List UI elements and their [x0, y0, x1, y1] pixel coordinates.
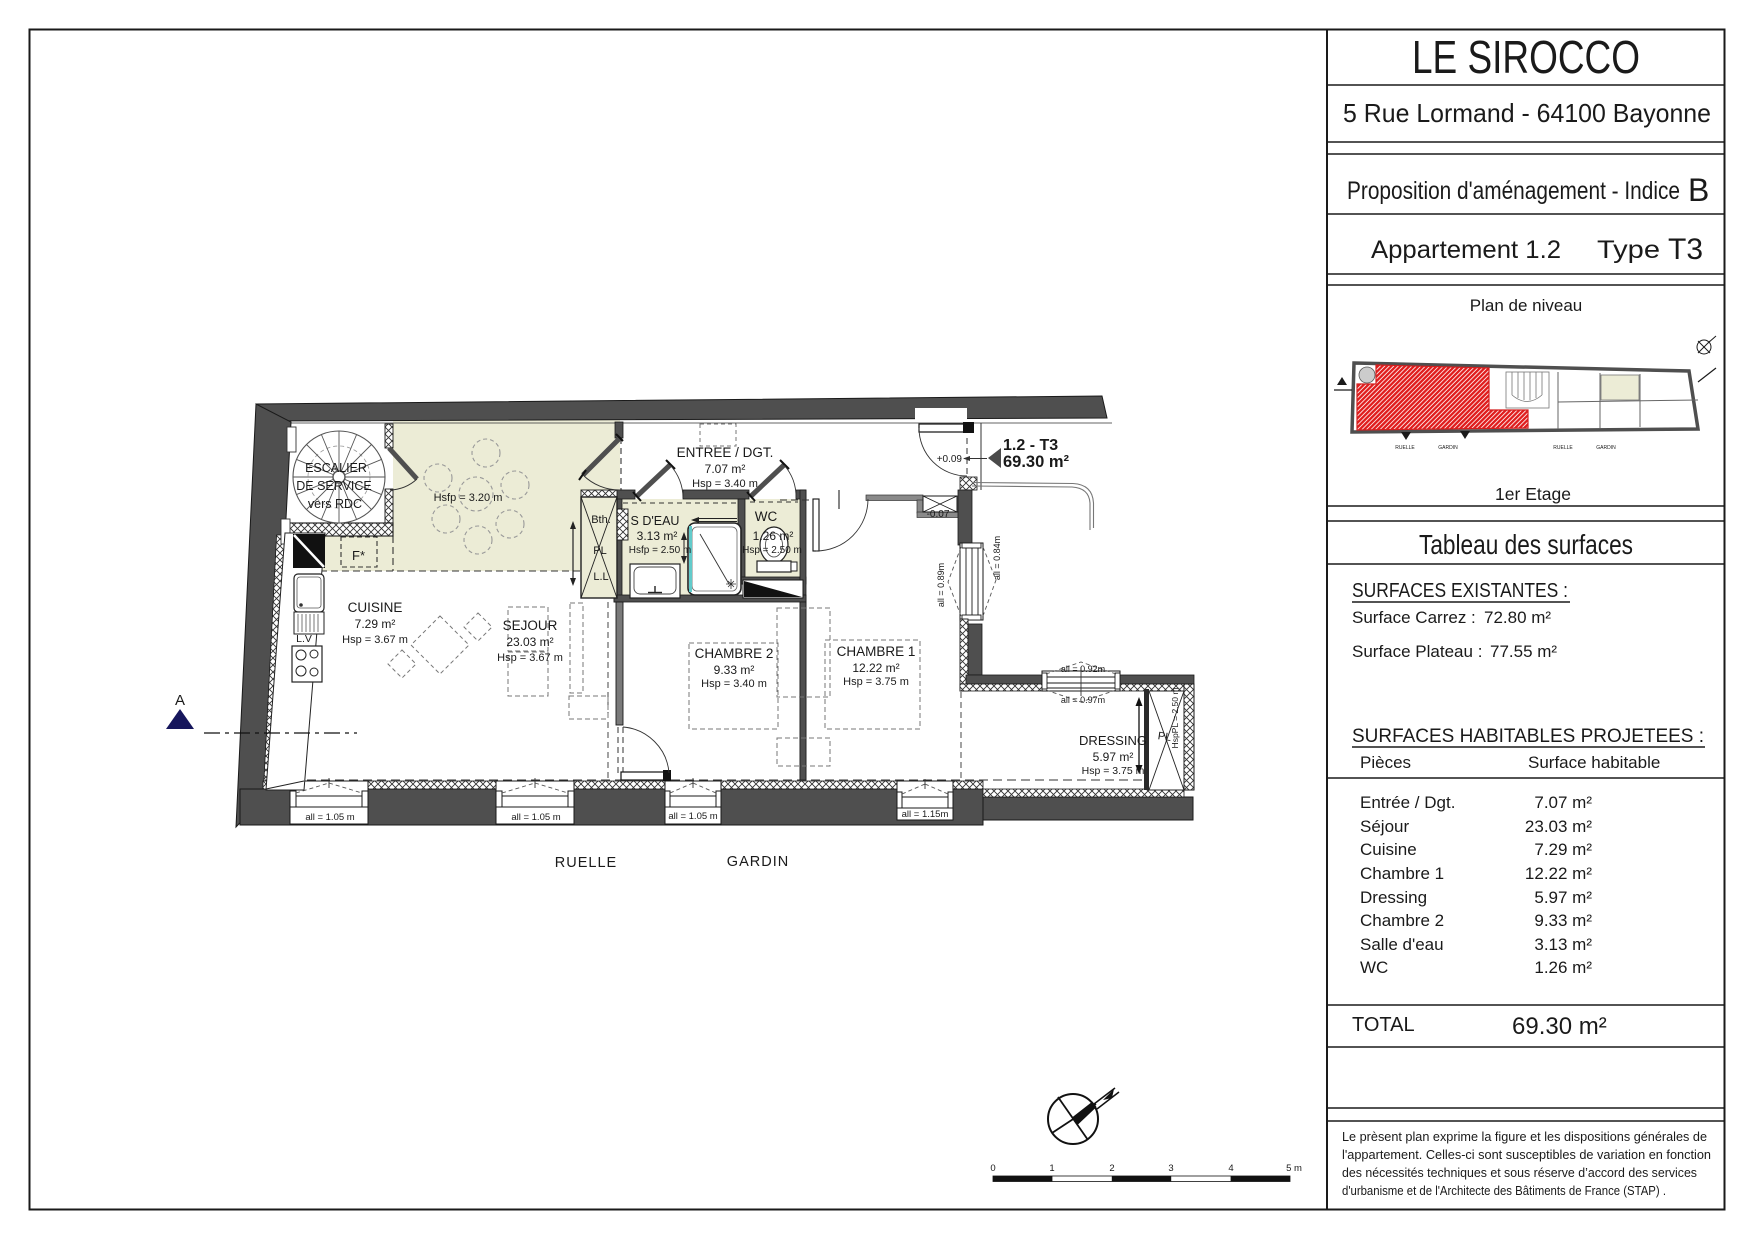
svg-text:69.30 m²: 69.30 m²	[1003, 453, 1070, 471]
svg-text:5.97 m²: 5.97 m²	[1093, 750, 1134, 764]
svg-text:SURFACES HABITABLES PROJETEES: SURFACES HABITABLES PROJETEES :	[1352, 725, 1704, 747]
svg-text:Hsp = 3.67 m: Hsp = 3.67 m	[342, 634, 408, 646]
svg-text:vers RDC: vers RDC	[308, 497, 362, 511]
svg-text:all = 1.05 m: all = 1.05 m	[668, 811, 717, 822]
svg-text:Cuisine: Cuisine	[1360, 840, 1417, 859]
svg-text:Hsp = 3.75 m: Hsp = 3.75 m	[843, 676, 909, 688]
svg-text:F*: F*	[352, 548, 365, 563]
svg-text:all = 0.84m: all = 0.84m	[992, 536, 1002, 580]
svg-text:1er Etage: 1er Etage	[1495, 484, 1571, 504]
svg-text:Surface habitable: Surface habitable	[1528, 753, 1660, 772]
svg-text:all = 0.92m: all = 0.92m	[1061, 664, 1105, 674]
svg-text:SEJOUR: SEJOUR	[503, 618, 558, 633]
svg-text:Chambre 1: Chambre 1	[1360, 864, 1444, 883]
svg-text:RUELLE: RUELLE	[555, 855, 617, 871]
svg-text:L.V: L.V	[296, 633, 312, 645]
svg-text:Tableau des surfaces: Tableau des surfaces	[1419, 529, 1633, 560]
svg-text:1.26 m²: 1.26 m²	[753, 529, 794, 543]
svg-text:CHAMBRE 1: CHAMBRE 1	[837, 644, 916, 659]
svg-text:all = 1.05 m: all = 1.05 m	[511, 812, 560, 823]
svg-text:Salle d'eau: Salle d'eau	[1360, 935, 1444, 954]
svg-text:7.29 m²: 7.29 m²	[355, 617, 396, 631]
svg-text:3.13 m²: 3.13 m²	[637, 529, 678, 543]
svg-text:all = 1.05 m: all = 1.05 m	[305, 812, 354, 823]
svg-text:5 Rue Lormand - 64100 Bayonne: 5 Rue Lormand - 64100 Bayonne	[1343, 98, 1711, 128]
svg-text:TOTAL: TOTAL	[1352, 1014, 1415, 1036]
svg-text:Séjour: Séjour	[1360, 817, 1409, 836]
svg-text:RUELLE: RUELLE	[1395, 445, 1415, 451]
svg-text:12.22 m²: 12.22 m²	[852, 661, 899, 675]
svg-text:9.33 m²: 9.33 m²	[1534, 911, 1592, 930]
svg-text:all = 0.89m: all = 0.89m	[936, 563, 946, 607]
svg-text:12.22 m²: 12.22 m²	[1525, 864, 1592, 883]
svg-text:S D'EAU: S D'EAU	[631, 514, 680, 528]
svg-text:3.13 m²: 3.13 m²	[1534, 935, 1592, 954]
svg-text:HspPL = 2.50 m: HspPL = 2.50 m	[1170, 688, 1180, 749]
svg-text:CHAMBRE 2: CHAMBRE 2	[695, 646, 774, 661]
svg-text:4: 4	[1228, 1163, 1233, 1174]
svg-text:+0.09: +0.09	[937, 454, 963, 465]
svg-text:1.2 - T3: 1.2 - T3	[1003, 437, 1058, 454]
svg-text:SURFACES EXISTANTES :: SURFACES EXISTANTES :	[1352, 580, 1568, 602]
svg-text:77.55 m²: 77.55 m²	[1490, 642, 1557, 661]
svg-text:Pièces: Pièces	[1360, 753, 1411, 772]
svg-text:72.80 m²: 72.80 m²	[1484, 608, 1551, 627]
svg-text:Surface Plateau :: Surface Plateau :	[1352, 642, 1482, 661]
svg-text:5.97 m²: 5.97 m²	[1534, 888, 1592, 907]
svg-text:69.30 m²: 69.30 m²	[1512, 1013, 1607, 1040]
svg-text:WC: WC	[1360, 958, 1388, 977]
svg-text:2: 2	[1109, 1163, 1114, 1174]
svg-text:DRESSING: DRESSING	[1079, 733, 1147, 748]
svg-text:A: A	[175, 692, 185, 709]
svg-text:Proposition d'aménagement - In: Proposition d'aménagement - Indice	[1347, 177, 1680, 205]
svg-text:-0.07: -0.07	[927, 509, 950, 520]
svg-text:T3: T3	[1668, 233, 1703, 266]
svg-text:0: 0	[990, 1163, 995, 1174]
svg-text:1.26 m²: 1.26 m²	[1534, 958, 1592, 977]
svg-text:d'urbanisme et de l'Architecte: d'urbanisme et de l'Architecte des Bâtim…	[1342, 1183, 1666, 1198]
svg-text:Entrée / Dgt.: Entrée / Dgt.	[1360, 793, 1455, 812]
svg-text:7.07 m²: 7.07 m²	[1534, 793, 1592, 812]
svg-text:GARDIN: GARDIN	[1438, 445, 1458, 451]
svg-text:ESCALIER: ESCALIER	[305, 461, 367, 475]
svg-text:B: B	[1688, 172, 1709, 208]
svg-text:Hsfp = 2.50 m: Hsfp = 2.50 m	[629, 545, 692, 556]
svg-text:L.L: L.L	[593, 571, 608, 583]
svg-text:Plan de niveau: Plan de niveau	[1470, 296, 1582, 315]
svg-text:23.03 m²: 23.03 m²	[506, 635, 553, 649]
svg-text:des nécessités techniques et s: des nécessités techniques et sous réserv…	[1342, 1165, 1697, 1180]
svg-text:GARDIN: GARDIN	[1596, 445, 1616, 451]
svg-text:WC: WC	[755, 509, 778, 524]
svg-text:3: 3	[1168, 1163, 1173, 1174]
svg-text:Hsp = 3.40 m: Hsp = 3.40 m	[692, 478, 758, 490]
svg-text:Type: Type	[1597, 236, 1660, 264]
svg-text:7.07 m²: 7.07 m²	[705, 462, 746, 476]
svg-text:all = 0.97m: all = 0.97m	[1061, 695, 1105, 705]
svg-text:Dressing: Dressing	[1360, 888, 1427, 907]
svg-text:Hsp = 3.40 m: Hsp = 3.40 m	[701, 678, 767, 690]
svg-text:LE SIROCCO: LE SIROCCO	[1412, 31, 1640, 83]
svg-text:Bth.: Bth.	[591, 514, 611, 526]
svg-text:1: 1	[1049, 1163, 1054, 1174]
svg-text:PL: PL	[593, 545, 606, 557]
svg-text:RUELLE: RUELLE	[1553, 445, 1573, 451]
svg-text:l'appartement. Celles-ci sont: l'appartement. Celles-ci sont susceptibl…	[1342, 1147, 1711, 1162]
svg-text:GARDIN: GARDIN	[727, 854, 789, 870]
svg-text:Chambre 2: Chambre 2	[1360, 911, 1444, 930]
svg-text:Hsp = 2.50 m: Hsp = 2.50 m	[742, 545, 802, 556]
svg-text:9.33 m²: 9.33 m²	[714, 663, 755, 677]
svg-text:Le prèsent plan exprime la fig: Le prèsent plan exprime la figure et les…	[1342, 1129, 1707, 1144]
svg-text:DE SERVICE: DE SERVICE	[296, 479, 372, 493]
svg-text:all = 1.15m: all = 1.15m	[902, 809, 949, 820]
svg-text:Hsp = 3.75 m: Hsp = 3.75 m	[1082, 765, 1145, 777]
svg-text:Hsp = 3.67 m: Hsp = 3.67 m	[497, 652, 563, 664]
svg-text:23.03 m²: 23.03 m²	[1525, 817, 1592, 836]
svg-text:CUISINE: CUISINE	[348, 600, 403, 615]
svg-text:5 m: 5 m	[1286, 1163, 1302, 1174]
svg-text:ENTREE / DGT.: ENTREE / DGT.	[677, 445, 774, 460]
svg-text:7.29 m²: 7.29 m²	[1534, 840, 1592, 859]
svg-text:Hsfp = 3.20 m: Hsfp = 3.20 m	[434, 492, 503, 504]
svg-text:Appartement 1.2: Appartement 1.2	[1371, 236, 1561, 264]
svg-text:Surface Carrez :: Surface Carrez :	[1352, 608, 1476, 627]
